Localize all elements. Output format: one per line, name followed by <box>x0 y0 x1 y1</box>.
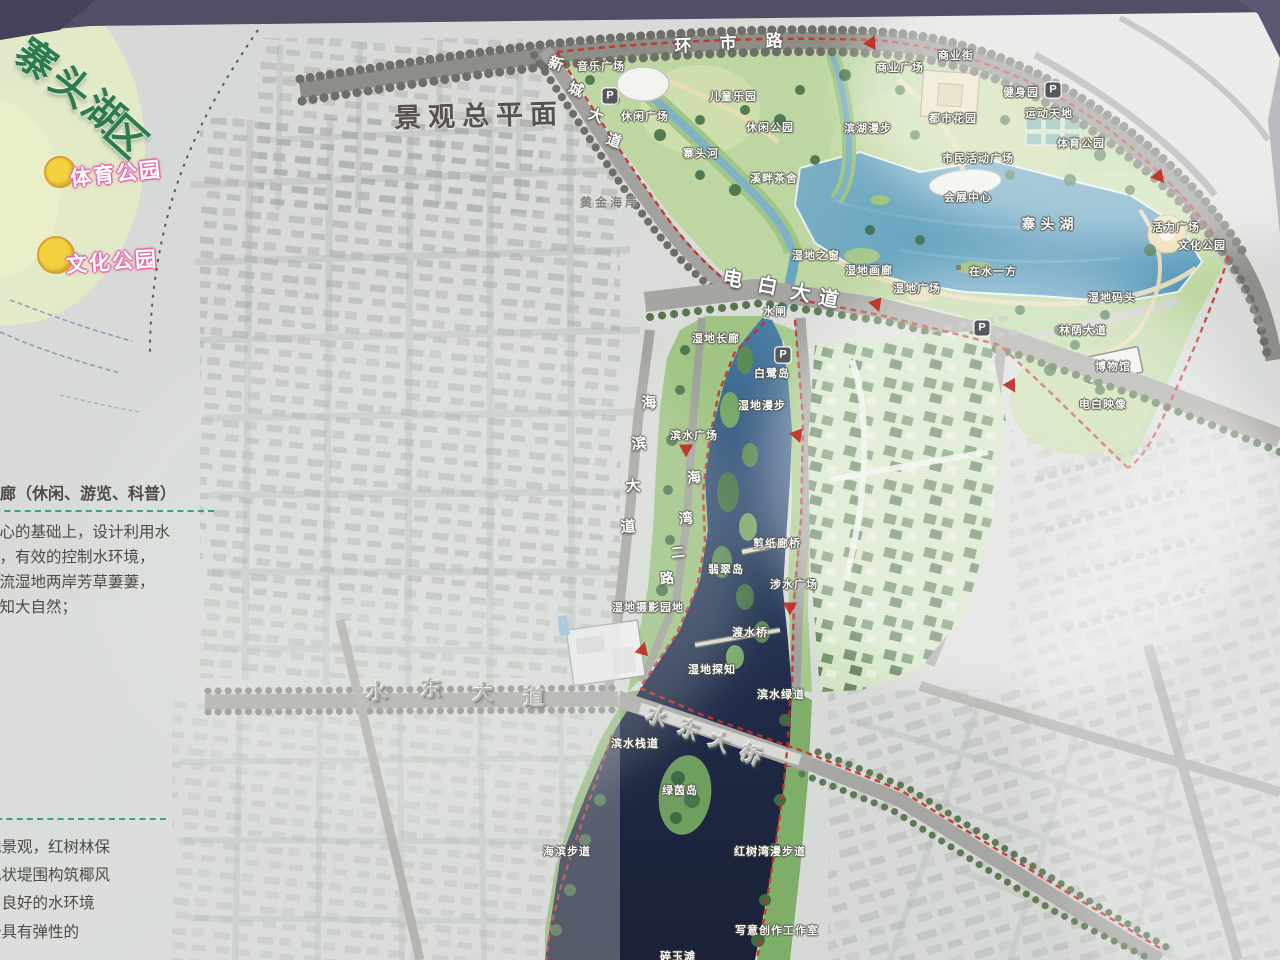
panel-line: 下，有效的控制水环境， <box>0 545 214 570</box>
plan-title: 景观总平面 <box>394 92 565 135</box>
panel-line: 核心的基础上，设计利用水 <box>0 520 214 545</box>
text-panel-corridor: 长廊（休闲、游览、科普） 核心的基础上，设计利用水 下，有效的控制水环境， 河流… <box>0 480 214 620</box>
panel-line: 感知大自然； <box>0 595 214 620</box>
dashed-divider <box>0 510 214 512</box>
legend-label: 文化公园 <box>65 243 159 279</box>
panel-line: 现状堤围构筑椰风 <box>0 862 166 890</box>
panel-line: 河流湿地两岸芳草萋萋， <box>0 570 214 595</box>
text-panel-mangrove: 地景观，红树林保 现状堤围构筑椰风 ，良好的水环境 个具有弹性的 <box>0 818 166 947</box>
dashed-divider <box>0 818 166 820</box>
panel-line: 个具有弹性的 <box>0 919 166 947</box>
panel-line: ，良好的水环境 <box>0 890 166 918</box>
panel-heading: 长廊（休闲、游览、科普） <box>0 480 214 510</box>
music-plaza-shape <box>617 67 669 101</box>
panel-line: 地景观，红树林保 <box>0 834 166 862</box>
map-board: 音乐广场休闲广场儿童乐园休闲公园寨头河溪畔茶舍黄金海岸商业广场商业街健身园运动天… <box>0 0 1280 960</box>
